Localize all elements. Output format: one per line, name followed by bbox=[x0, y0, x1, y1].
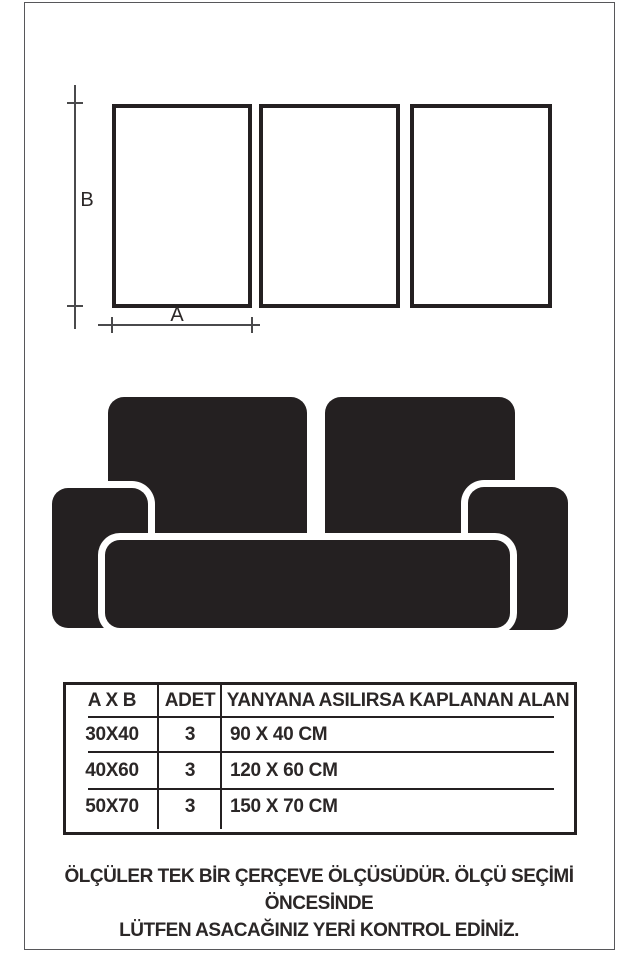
cell-qty: 3 bbox=[158, 721, 222, 749]
header-area: YANYANA ASILIRSA KAPLANAN ALAN bbox=[222, 687, 574, 715]
header-qty: ADET bbox=[158, 687, 222, 715]
table-row-divider-1 bbox=[88, 716, 554, 718]
disclaimer-text: ÖLÇÜLER TEK BİR ÇERÇEVE ÖLÇÜSÜDÜR. ÖLÇÜ … bbox=[24, 863, 614, 944]
cell-area: 120 X 60 CM bbox=[222, 757, 574, 785]
cell-size: 30X40 bbox=[66, 721, 158, 749]
cell-qty: 3 bbox=[158, 793, 222, 821]
cell-qty: 3 bbox=[158, 757, 222, 785]
table-row: 40X60 3 120 X 60 CM bbox=[66, 757, 574, 785]
header-size: A X B bbox=[66, 687, 158, 715]
table-header-row: A X B ADET YANYANA ASILIRSA KAPLANAN ALA… bbox=[66, 687, 574, 715]
product-info-image: B A A X B ADET YANYANA ASILIRSA KAPLANAN… bbox=[0, 0, 640, 960]
cell-size: 40X60 bbox=[66, 757, 158, 785]
table-row-divider-3 bbox=[88, 788, 554, 790]
table-row-divider-2 bbox=[88, 751, 554, 753]
cell-size: 50X70 bbox=[66, 793, 158, 821]
table-row: 30X40 3 90 X 40 CM bbox=[66, 721, 574, 749]
table-row: 50X70 3 150 X 70 CM bbox=[66, 793, 574, 821]
cell-area: 150 X 70 CM bbox=[222, 793, 574, 821]
disclaimer-line-2: LÜTFEN ASACAĞINIZ YERİ KONTROL EDİNİZ. bbox=[24, 917, 614, 944]
disclaimer-line-1: ÖLÇÜLER TEK BİR ÇERÇEVE ÖLÇÜSÜDÜR. ÖLÇÜ … bbox=[24, 863, 614, 917]
size-table: A X B ADET YANYANA ASILIRSA KAPLANAN ALA… bbox=[63, 682, 577, 835]
cell-area: 90 X 40 CM bbox=[222, 721, 574, 749]
